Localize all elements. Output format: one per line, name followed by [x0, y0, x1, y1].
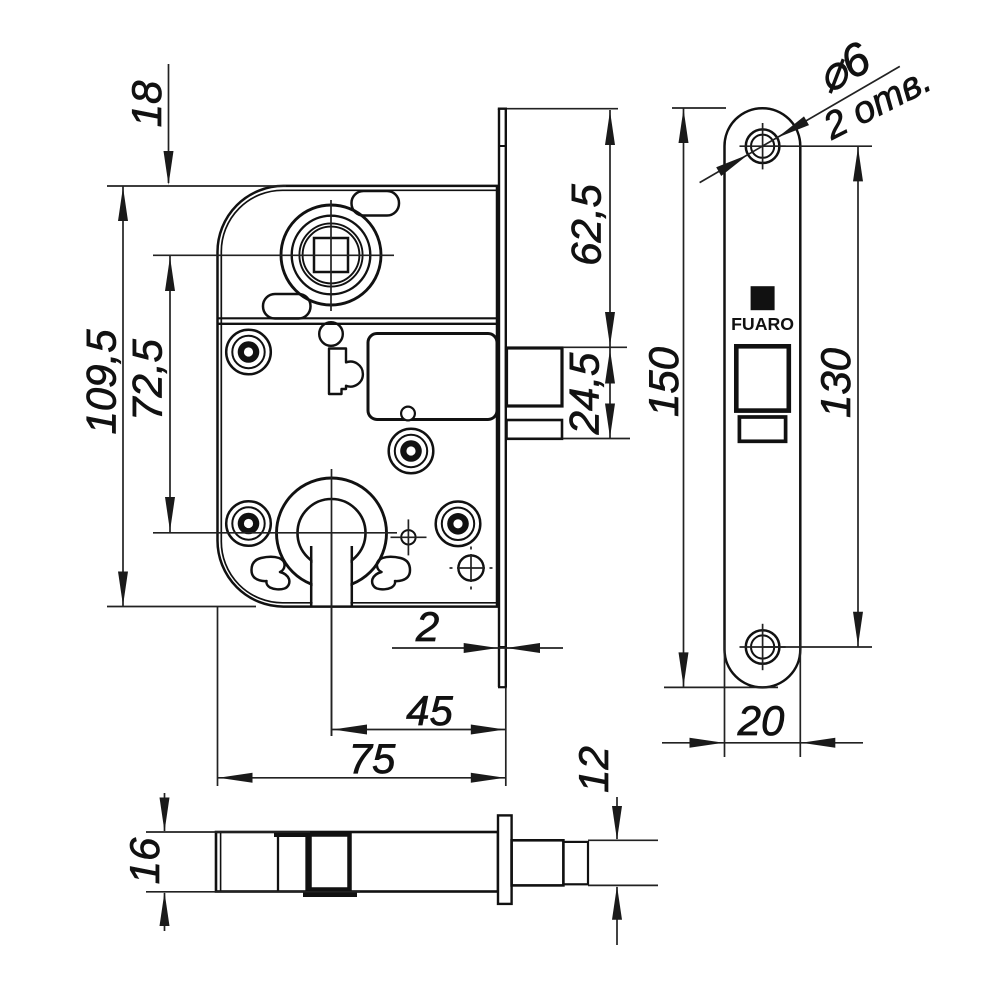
svg-text:24,5: 24,5: [561, 352, 608, 435]
svg-text:75: 75: [349, 735, 396, 782]
svg-text:150: 150: [640, 346, 687, 417]
svg-text:20: 20: [737, 697, 785, 744]
svg-text:18: 18: [123, 80, 170, 127]
svg-text:62,5: 62,5: [563, 183, 610, 265]
svg-text:130: 130: [812, 347, 859, 418]
svg-text:72,5: 72,5: [124, 338, 171, 420]
svg-text:45: 45: [406, 687, 453, 734]
svg-text:109,5: 109,5: [78, 329, 125, 435]
svg-text:12: 12: [570, 746, 617, 793]
svg-text:FUARO: FUARO: [731, 314, 794, 334]
svg-text:16: 16: [121, 837, 168, 884]
svg-text:2: 2: [415, 603, 439, 650]
